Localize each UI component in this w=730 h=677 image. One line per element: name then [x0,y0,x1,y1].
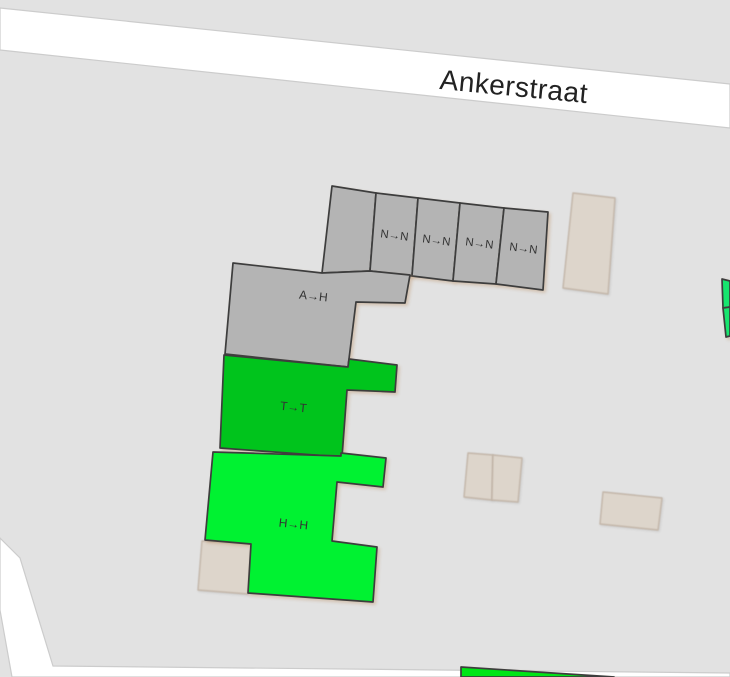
building-untagged-pair-left [464,453,493,500]
building-untagged-pair-right [492,455,522,502]
building-untagged-small-right [600,492,662,530]
building-untagged-large [563,193,615,294]
label-a-to-h: A→H [298,288,328,305]
map-canvas[interactable]: Ankerstraat N→N N→N N→N N→N A→H T→T H→H [0,0,730,677]
building-green-right-edge-upper[interactable] [722,279,730,308]
label-t-to-t: T→T [279,399,308,416]
building-terrace-end[interactable] [322,186,376,273]
building-untagged-notch [198,541,251,594]
